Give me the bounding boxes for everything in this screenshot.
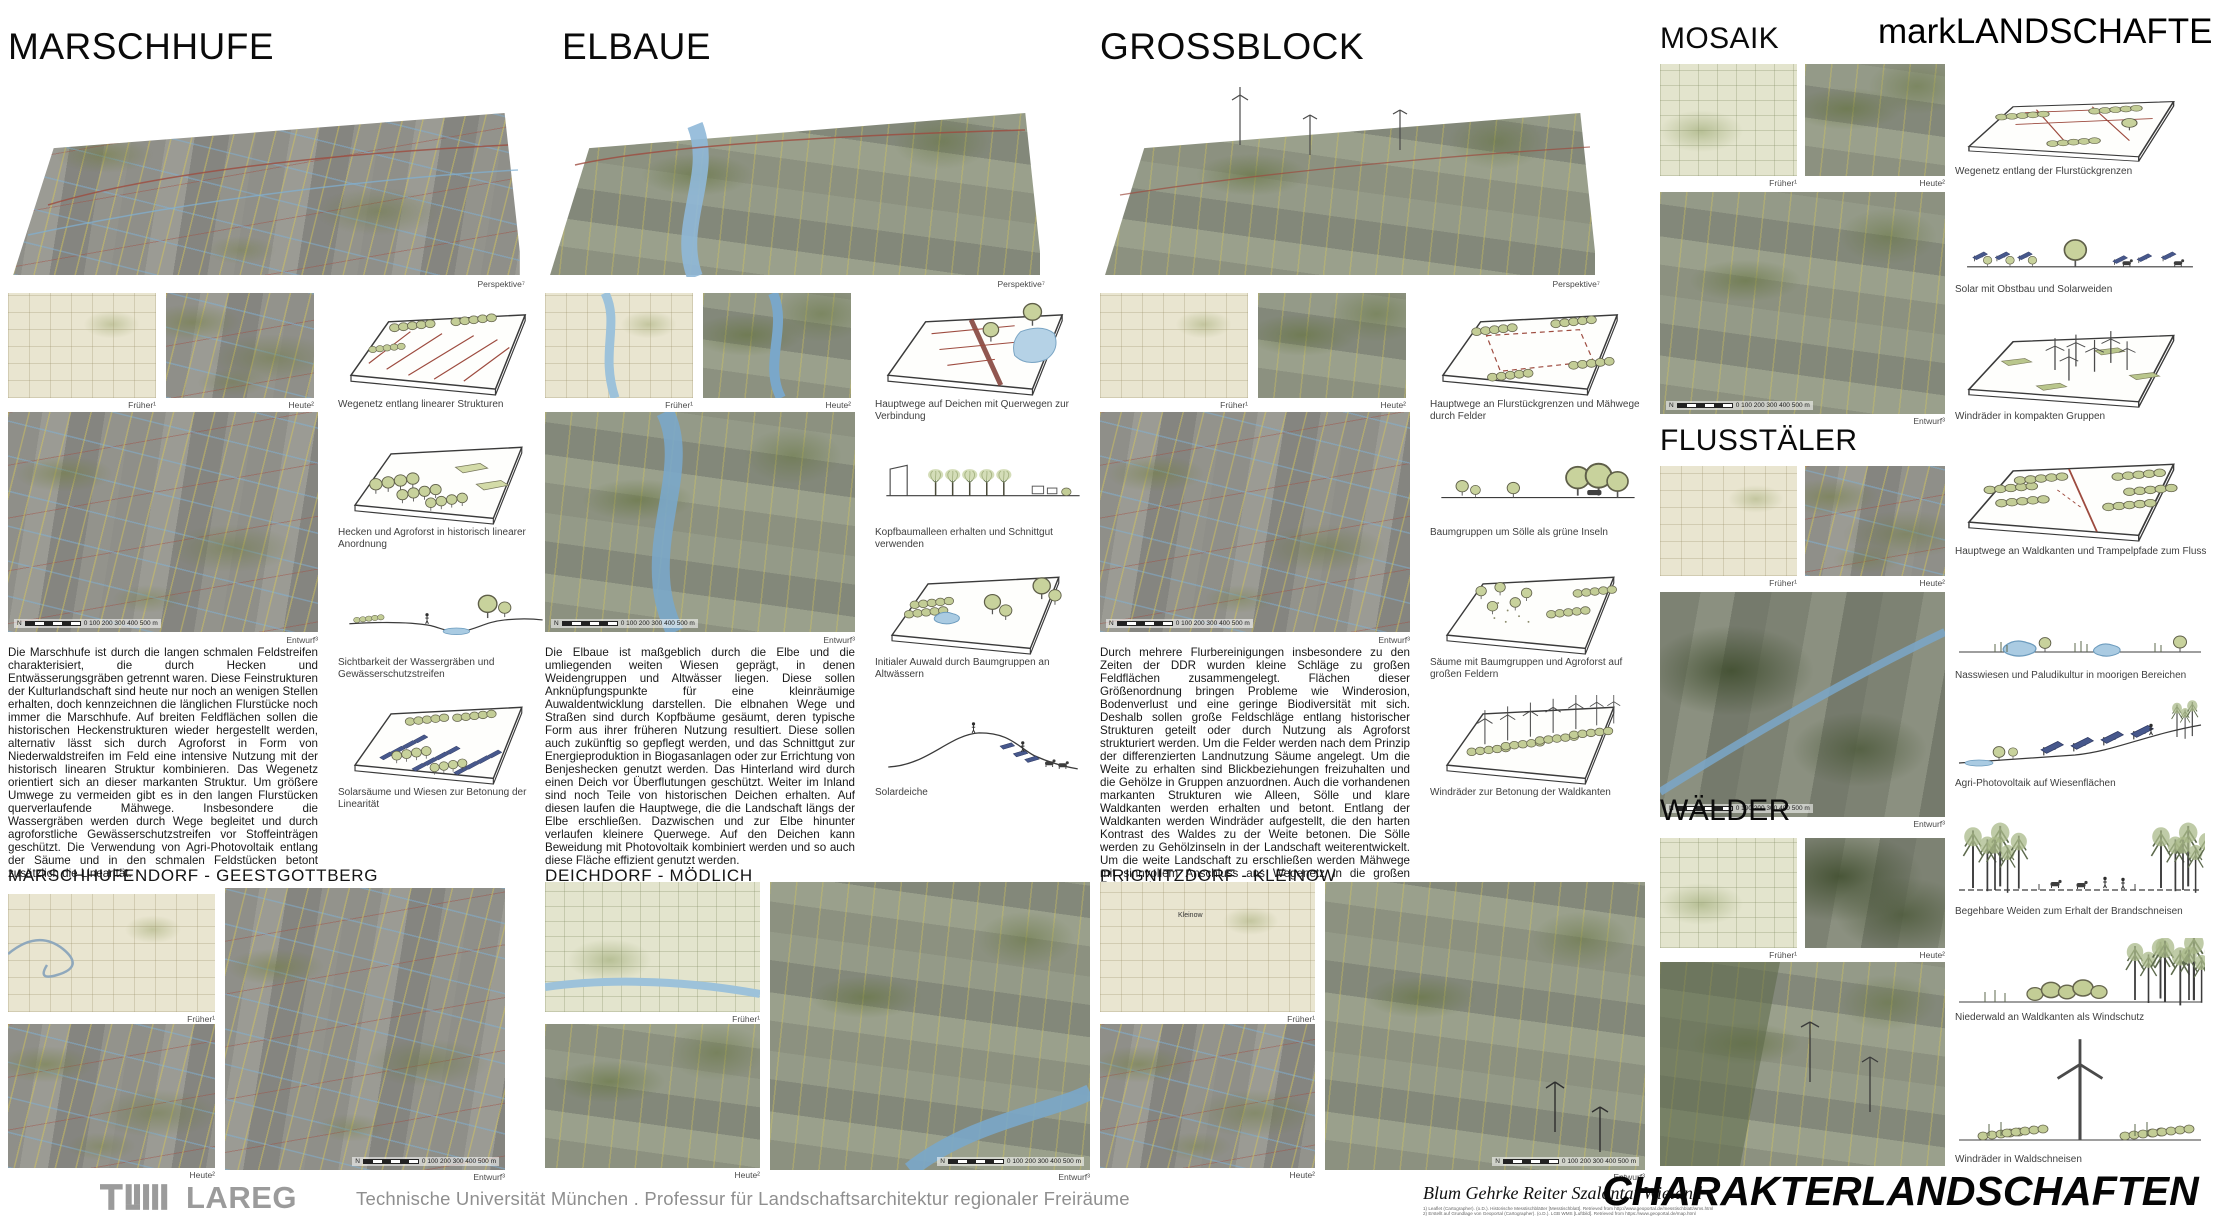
- aerial-river-overlay: [1660, 592, 1945, 817]
- perspective-overlay: [8, 85, 525, 277]
- sketch-caption: Solardeiche: [875, 787, 1090, 799]
- heute-aerial: [1805, 838, 1945, 948]
- heute-caption: Heute²: [545, 1170, 760, 1180]
- sketch-caption: Säume mit Baumgruppen und Agroforst auf …: [1430, 657, 1645, 680]
- brand-title: markLANDSCHAFTEN: [1878, 12, 2215, 52]
- entwurf-aerial: N0 100 200 300 400 500 m: [8, 412, 318, 632]
- frueher-caption: Früher¹: [1660, 178, 1797, 188]
- sketch-caption: Solar mit Obstbau und Solarweiden: [1955, 284, 2210, 296]
- frueher-map: [8, 293, 156, 398]
- column-grossblock: GROSSBLOCK Perspektive⁷ Früher¹ Heute² N…: [1100, 0, 1645, 860]
- sketch-caption: Baumgruppen um Sölle als grüne Inseln: [1430, 527, 1645, 539]
- heute-aerial: [8, 1024, 215, 1168]
- scalebar: N0 100 200 300 400 500 m: [352, 1157, 499, 1166]
- sketch-solarsaeume-illustration: [338, 695, 553, 785]
- sketch-hauptwege-illustration: [1430, 302, 1645, 396]
- frueher-map: [8, 894, 215, 1012]
- sketch-wegenetz-illustration: [338, 302, 553, 396]
- scalebar-label: 0 100 200 300 400 500 m: [84, 620, 158, 627]
- north-arrow-icon: N: [1495, 1158, 1500, 1165]
- column-title: ELBAUE: [562, 26, 711, 68]
- heute-aerial: [703, 293, 851, 398]
- sketch-caption: Hauptwege auf Deichen mit Querwegen zur …: [875, 399, 1090, 422]
- scalebar-label: 0 100 200 300 400 500 m: [621, 620, 695, 627]
- sketch-wegenetz-flurstueck-illustration: [1955, 92, 2205, 162]
- perspective-image: [545, 85, 1045, 277]
- heute-aerial: [1805, 466, 1945, 576]
- frueher-map: [1660, 838, 1797, 948]
- entwurf-aerial: N0 100 200 300 400 500 m: [1100, 412, 1410, 632]
- frueher-caption: Früher¹: [545, 400, 693, 410]
- heute-aerial: [1258, 293, 1406, 398]
- north-arrow-icon: N: [1669, 402, 1674, 409]
- heute-caption: Heute²: [1805, 950, 1945, 960]
- section-title-waelder: WÄLDER: [1660, 794, 1791, 828]
- heute-caption: Heute²: [8, 1170, 215, 1180]
- sketch-solardeich-illustration: [875, 695, 1090, 785]
- poster-charakterlandschaften: { "header": { "brand": "markLANDSCHAFTEN…: [0, 0, 2215, 1223]
- sketch-waldkanten-trampelpfad-illustration: [1955, 452, 2205, 542]
- entwurf-caption: Entwurf³: [545, 635, 855, 645]
- sketch-caption: Begehbare Weiden zum Erhalt der Brandsch…: [1955, 906, 2210, 918]
- scalebar-label: 0 100 200 300 400 500 m: [1736, 402, 1810, 409]
- frueher-map: [545, 293, 693, 398]
- scalebar: N0 100 200 300 400 500 m: [937, 1157, 1084, 1166]
- frueher-map: [545, 882, 760, 1012]
- north-arrow-icon: N: [1109, 620, 1114, 627]
- column-right-sections: MOSAIK Früher¹ Heute² N0 100 200 300 400…: [1660, 0, 1945, 1170]
- sketch-auwald-illustration: [875, 565, 1090, 655]
- frueher-map: [1660, 466, 1797, 576]
- sketch-caption: Niederwald an Waldkanten als Windschutz: [1955, 1012, 2210, 1024]
- perspective-image: [1100, 85, 1600, 277]
- map-river-overlay: [545, 882, 760, 1012]
- sketch-agri-pv-illustration: [1955, 695, 2205, 773]
- sketch-caption: Windräder zur Betonung der Waldkanten: [1430, 787, 1645, 799]
- heute-aerial: [545, 1024, 760, 1168]
- entwurf-aerial: [1660, 962, 1945, 1166]
- north-arrow-icon: N: [355, 1158, 360, 1165]
- village-deichdorf: DEICHDORF - MÖDLICH Früher¹ Heute² N0 10…: [545, 860, 1090, 1180]
- perspective-caption: Perspektive⁷: [545, 279, 1045, 289]
- heute-caption: Heute²: [703, 400, 851, 410]
- column-body-text: Die Marschhufe ist durch die langen schm…: [8, 646, 318, 880]
- sketch-caption: Hauptwege an Flurstückgrenzen und Mähweg…: [1430, 399, 1645, 422]
- scalebar: N0 100 200 300 400 500 m: [14, 619, 161, 628]
- frueher-caption: Früher¹: [545, 1014, 760, 1024]
- sketch-caption: Windräder in Waldschneisen: [1955, 1154, 2210, 1166]
- sketch-caption: Nasswiesen und Paludikultur in moorigen …: [1955, 670, 2210, 682]
- frueher-caption: Früher¹: [1660, 950, 1797, 960]
- frueher-caption: Früher¹: [8, 400, 156, 410]
- village-prignitzdorf: PRIGNITZDORF - KLEINOW Kleinow Früher¹ H…: [1100, 860, 1645, 1180]
- sketch-kopfbaum-illustration: [875, 435, 1090, 525]
- north-arrow-icon: N: [940, 1158, 945, 1165]
- entwurf-caption: Entwurf³: [1325, 1172, 1645, 1182]
- north-arrow-icon: N: [17, 620, 22, 627]
- sketch-nasswiesen-illustration: [1955, 598, 2205, 664]
- sketch-caption: Kopfbaumalleen erhalten und Schnittgut v…: [875, 527, 1090, 550]
- sketch-caption: Wegenetz entlang linearer Strukturen: [338, 399, 553, 411]
- column-elbaue: ELBAUE Perspektive⁷ Früher¹ Heute² N0 10…: [545, 0, 1090, 860]
- entwurf-aerial: N0 100 200 300 400 500 m: [770, 882, 1090, 1170]
- section-title-flusstaeler: FLUSSTÄLER: [1660, 424, 1857, 458]
- frueher-map: Kleinow: [1100, 882, 1315, 1012]
- sketch-windrad-waldschneise-illustration: [1955, 1036, 2205, 1150]
- scalebar: N0 100 200 300 400 500 m: [1106, 619, 1253, 628]
- column-title: MARSCHHUFE: [8, 26, 274, 68]
- sketch-caption: Solarsäume und Wiesen zur Betonung der L…: [338, 787, 553, 810]
- perspective-image: [8, 85, 525, 277]
- right-sketch-band: Wegenetz entlang der Flurstückgrenzen So…: [1950, 0, 2215, 1223]
- section-title-mosaik: MOSAIK: [1660, 22, 1779, 56]
- entwurf-aerial: N0 100 200 300 400 500 m: [1325, 882, 1645, 1170]
- sketch-deichwege-illustration: [875, 302, 1090, 396]
- sketch-begehbare-weiden-illustration: [1955, 816, 2205, 904]
- frueher-caption: Früher¹: [8, 1014, 215, 1024]
- affiliation-text: Technische Universität München . Profess…: [356, 1188, 1130, 1210]
- heute-caption: Heute²: [1805, 178, 1945, 188]
- frueher-caption: Früher¹: [1100, 400, 1248, 410]
- scalebar-icon: [25, 621, 81, 627]
- sketch-caption: Hauptwege an Waldkanten und Trampelpfade…: [1955, 546, 2210, 558]
- aerial-river-overlay: [770, 882, 1090, 1170]
- column-marschhufe: MARSCHHUFE Perspektive⁷ Früher¹ Heute² N…: [8, 0, 553, 860]
- scalebar: N0 100 200 300 400 500 m: [1666, 401, 1813, 410]
- sketch-windraeder-gruppen-illustration: [1955, 324, 2205, 408]
- sketch-caption: Hecken und Agroforst in historisch linea…: [338, 527, 553, 550]
- perspective-overlay: [545, 85, 1045, 277]
- sketch-caption: Sichtbarkeit der Wassergräben und Gewäss…: [338, 657, 553, 680]
- tum-logo: [100, 1184, 174, 1210]
- scalebar-icon: [562, 621, 618, 627]
- entwurf-aerial: N0 100 200 300 400 500 m: [1660, 192, 1945, 414]
- entwurf-aerial: N0 100 200 300 400 500 m: [545, 412, 855, 632]
- heute-aerial: [1100, 1024, 1315, 1168]
- frueher-caption: Früher¹: [1100, 1014, 1315, 1024]
- heute-caption: Heute²: [1258, 400, 1406, 410]
- series-title: CHARAKTERLANDSCHAFTEN: [1602, 1168, 2199, 1215]
- heute-aerial: [1805, 64, 1945, 176]
- sketch-caption: Wegenetz entlang der Flurstückgrenzen: [1955, 166, 2210, 178]
- scalebar-label: 0 100 200 300 400 500 m: [1007, 1158, 1081, 1165]
- entwurf-caption: Entwurf³: [1100, 635, 1410, 645]
- sketch-caption: Windräder in kompakten Gruppen: [1955, 411, 2210, 423]
- scalebar-icon: [1117, 621, 1173, 627]
- sketch-hecken-agroforst-illustration: [338, 435, 553, 525]
- sketch-saeume-illustration: [1430, 565, 1645, 655]
- scalebar-icon: [1503, 1159, 1559, 1165]
- sketch-windraeder-waldkante-illustration: [1430, 695, 1645, 785]
- entwurf-aerial: N0 100 200 300 400 500 m: [225, 888, 505, 1170]
- sketch-solar-obstbau-illustration: [1955, 222, 2205, 278]
- sketch-niederwald-illustration: [1955, 938, 2205, 1012]
- heute-caption: Heute²: [1805, 578, 1945, 588]
- column-body-text: Durch mehrere Flurbereinigungen insbeson…: [1100, 646, 1410, 893]
- scalebar-label: 0 100 200 300 400 500 m: [422, 1158, 496, 1165]
- frueher-caption: Früher¹: [1660, 578, 1797, 588]
- scalebar-icon: [1677, 403, 1733, 409]
- scalebar: N0 100 200 300 400 500 m: [551, 619, 698, 628]
- scalebar: N0 100 200 300 400 500 m: [1492, 1157, 1639, 1166]
- frueher-map: [1100, 293, 1248, 398]
- perspective-caption: Perspektive⁷: [1100, 279, 1600, 289]
- frueher-map: [1660, 64, 1797, 176]
- sketch-soelle-illustration: [1430, 435, 1645, 525]
- map-place-label: Kleinow: [1178, 912, 1203, 919]
- sketch-wassergraeben-illustration: [338, 565, 553, 655]
- scalebar-icon: [948, 1159, 1004, 1165]
- column-title: GROSSBLOCK: [1100, 26, 1364, 68]
- scalebar-icon: [363, 1159, 419, 1165]
- heute-caption: Heute²: [166, 400, 314, 410]
- entwurf-caption: Entwurf³: [8, 635, 318, 645]
- aerial-river-overlay: [545, 412, 855, 632]
- map-river-overlay: [8, 894, 215, 1012]
- north-arrow-icon: N: [554, 620, 559, 627]
- entwurf-aerial: N0 100 200 300 400 500 m: [1660, 592, 1945, 817]
- sketch-caption: Agri-Photovoltaik auf Wiesenflächen: [1955, 778, 2210, 790]
- village-title: MARSCHHUFENDORF - GEESTGOTTBERG: [8, 866, 378, 886]
- aerial-river-overlay: [703, 293, 851, 398]
- aerial-forest-overlay: [1660, 962, 1945, 1166]
- village-marschhufendorf: MARSCHHUFENDORF - GEESTGOTTBERG Früher¹ …: [8, 860, 548, 1180]
- heute-caption: Heute²: [1100, 1170, 1315, 1180]
- scalebar-label: 0 100 200 300 400 500 m: [1562, 1158, 1636, 1165]
- heute-aerial: [166, 293, 314, 398]
- lareg-logo: LAREG: [186, 1180, 297, 1216]
- sketch-caption: Initialer Auwald durch Baumgruppen an Al…: [875, 657, 1090, 680]
- scalebar-label: 0 100 200 300 400 500 m: [1176, 620, 1250, 627]
- perspective-caption: Perspektive⁷: [8, 279, 525, 289]
- perspective-overlay: [1100, 85, 1600, 277]
- map-river-overlay: [545, 293, 693, 398]
- column-body-text: Die Elbaue ist maßgeblich durch die Elbe…: [545, 646, 855, 867]
- entwurf-caption: Entwurf³: [770, 1172, 1090, 1182]
- aerial-turbine-overlay: [1325, 882, 1645, 1170]
